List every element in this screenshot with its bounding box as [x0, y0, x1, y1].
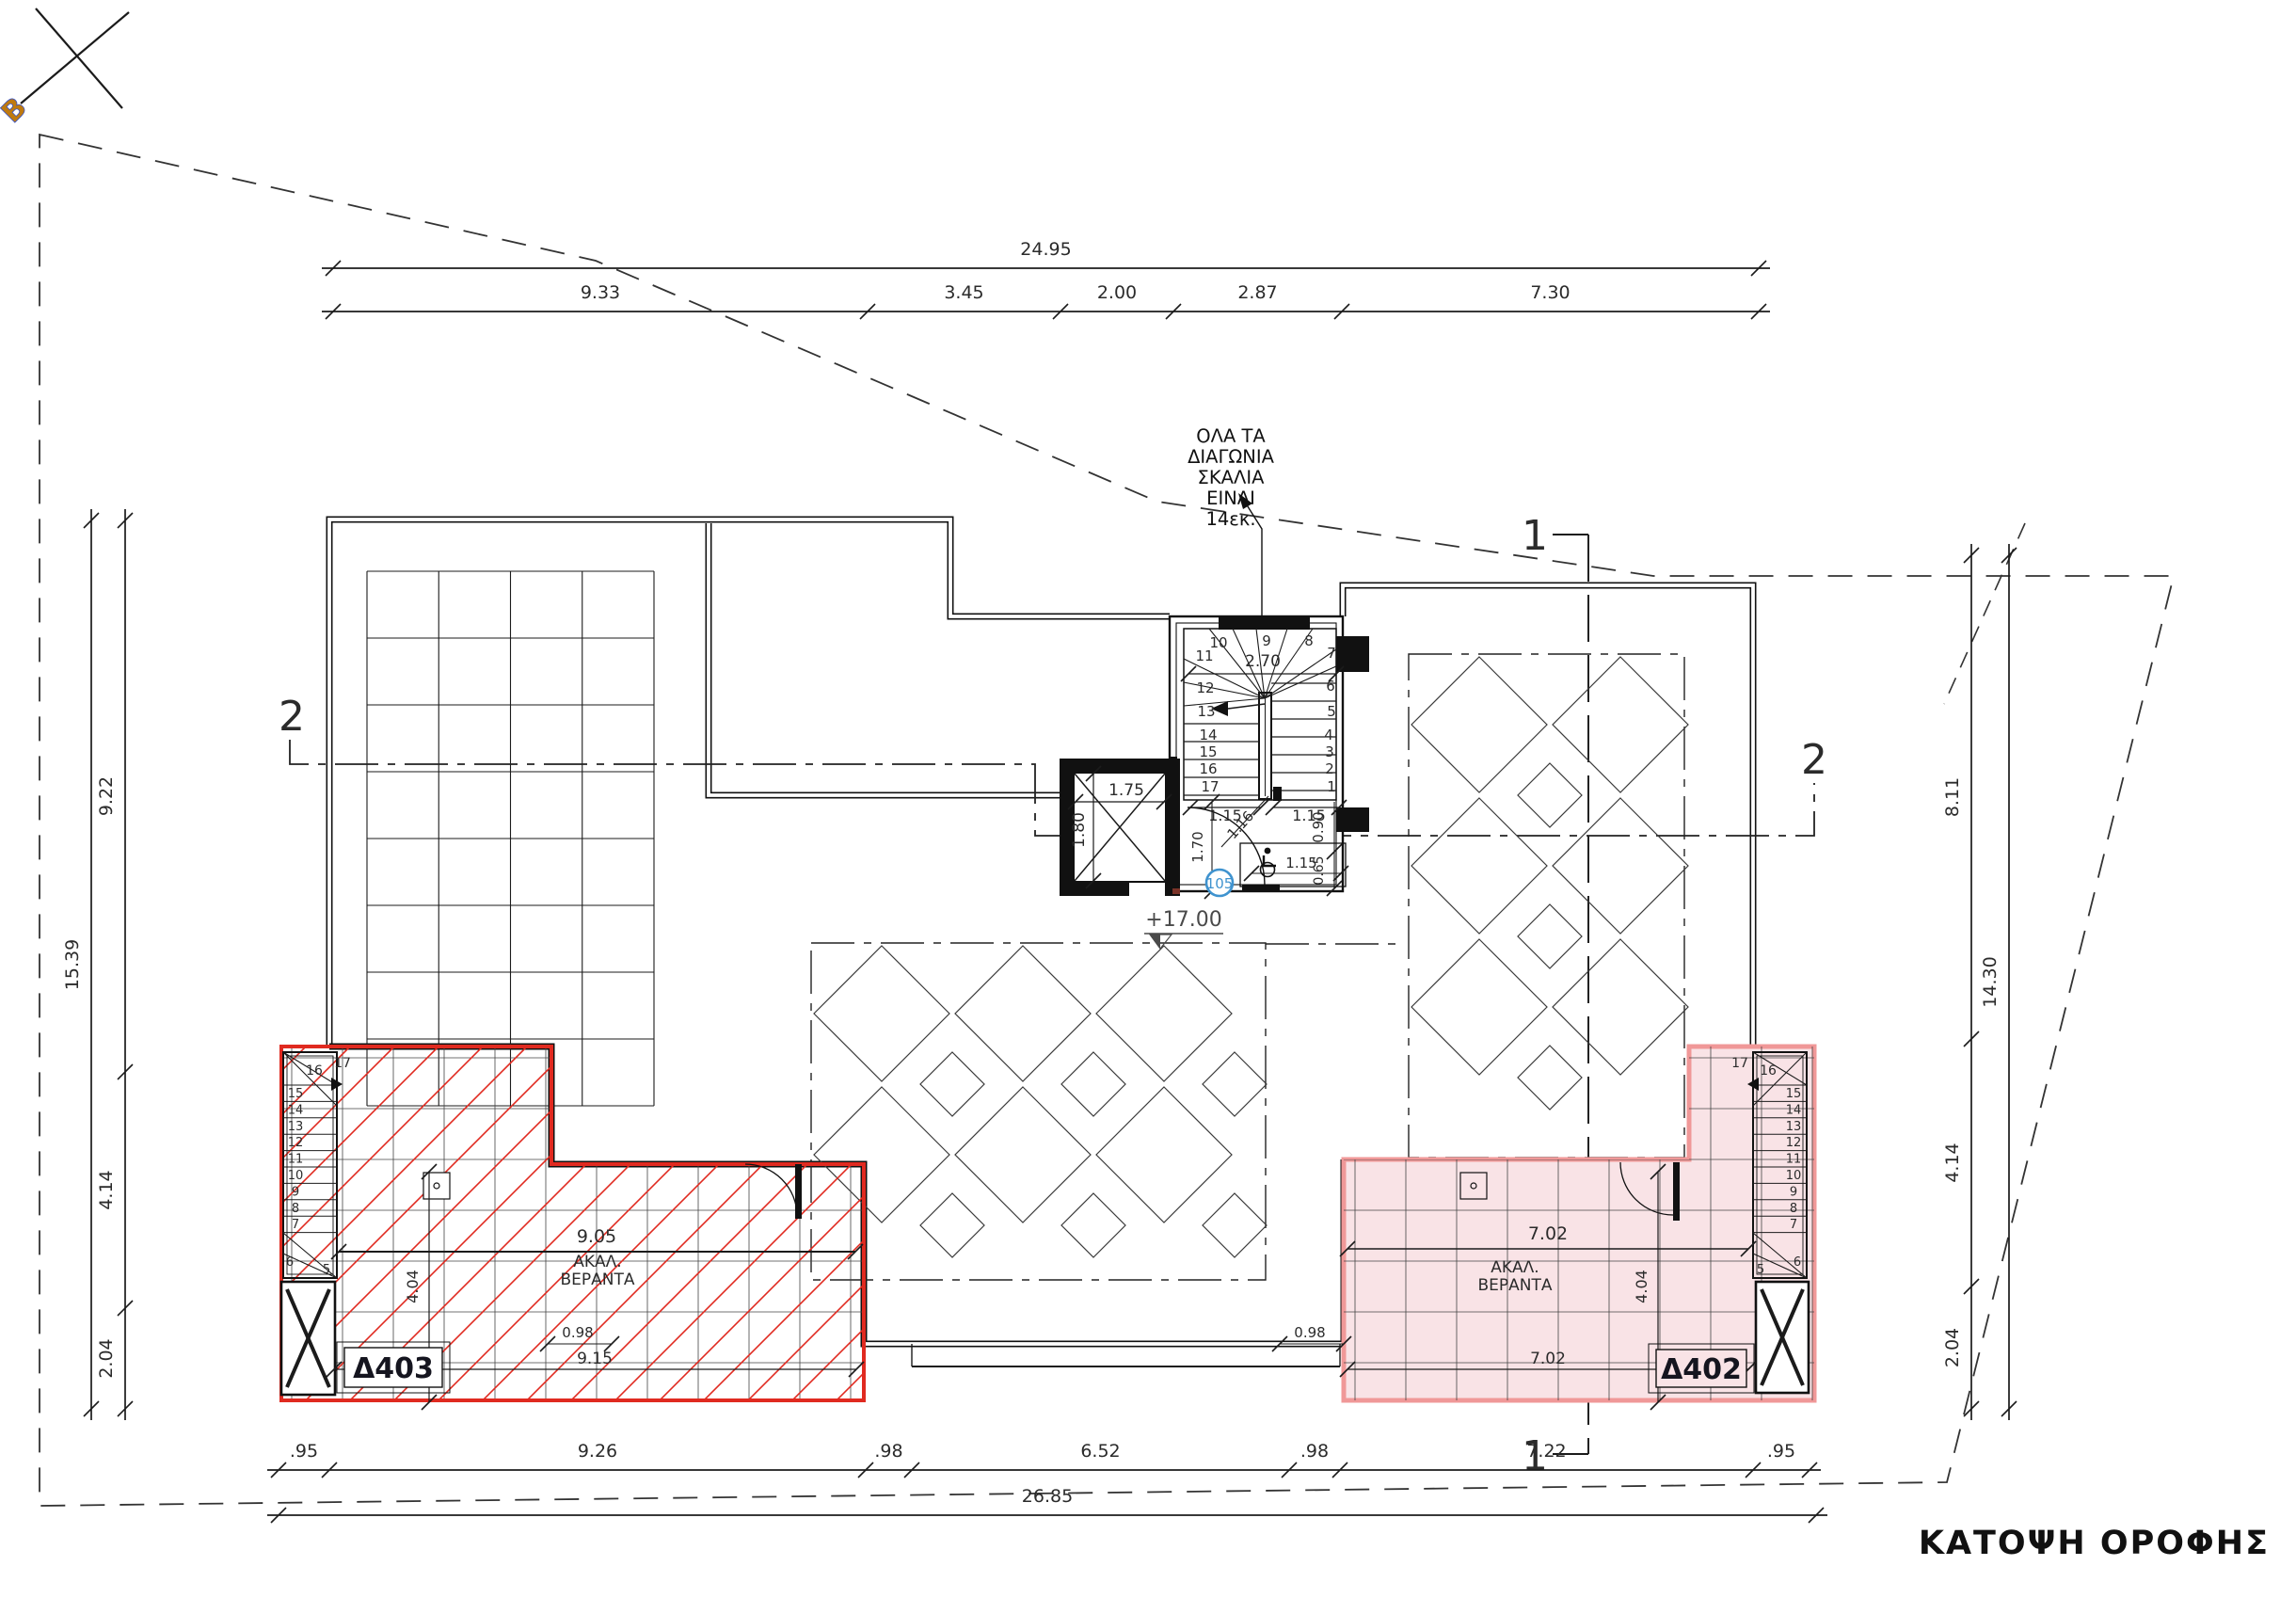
use-label: ΒΕΡΑΝΤΑ [560, 1270, 634, 1289]
dim-label: 0.98 [562, 1324, 593, 1341]
dim-label: 9.15 [577, 1350, 613, 1368]
step-number: 15 [1199, 743, 1217, 760]
north-arrow: Β [0, 8, 129, 130]
note-line: ΣΚΑΛΙΑ [1198, 467, 1266, 488]
step-number: 6 [1794, 1255, 1801, 1270]
dim-label: 7.02 [1530, 1350, 1566, 1368]
step-number: 10 [288, 1169, 304, 1183]
dim-label: 8.11 [1942, 777, 1963, 817]
step-number: 15 [1786, 1087, 1802, 1101]
step-number: 8 [292, 1202, 299, 1216]
dim-label: 3.45 [944, 282, 983, 303]
step-number: 8 [1790, 1202, 1797, 1216]
step-number: 4 [1324, 727, 1333, 743]
dim-label: 4.14 [96, 1170, 117, 1209]
drawing-title: ΚΑΤΟΨΗ ΟΡΟΦΗΣ [1919, 1525, 2270, 1562]
step-number: 12 [1786, 1136, 1802, 1150]
floorplan-drawing: Β112210111213141516179876543212.701.151.… [0, 0, 2296, 1598]
step-number: 14 [1786, 1103, 1802, 1117]
pergola-grid [367, 571, 654, 1106]
step-number: 2 [1325, 760, 1334, 777]
floorplan-sheet: Β112210111213141516179876543212.701.151.… [0, 0, 2296, 1598]
diamond-paving-right [1411, 657, 1688, 1110]
step-number: 16 [1760, 1063, 1777, 1079]
step-number: 16 [306, 1063, 323, 1079]
dim-label: 0.90 [1310, 811, 1327, 842]
dim-label: 7.02 [1528, 1223, 1568, 1244]
dim-label: 4.04 [404, 1270, 422, 1303]
section-2-left: 2 [279, 693, 305, 741]
step-number: 17 [1731, 1056, 1748, 1071]
level-value: +17.00 [1145, 908, 1221, 932]
dim-label: 6.52 [1080, 1441, 1120, 1462]
step-number: 17 [1201, 778, 1219, 795]
unit-tag: Δ403 [353, 1352, 434, 1385]
note-line: ΟΛΑ ΤΑ [1196, 425, 1266, 447]
step-number: 14 [1199, 727, 1217, 743]
step-number: 9 [292, 1185, 299, 1199]
step-number: 11 [1195, 647, 1213, 664]
step-number: 14 [288, 1103, 304, 1117]
dim-label: 1.15 [1285, 855, 1316, 871]
balcony-right: 1514131211109871617657.02ΑΚΑΛ.ΒΕΡΑΝΤΑ7.0… [1340, 1047, 1814, 1410]
dim-label: 4.14 [1942, 1143, 1963, 1182]
step-number: 16 [1199, 760, 1217, 777]
room-tag: 105 [1206, 875, 1234, 892]
step-number: 3 [1325, 743, 1334, 760]
dim-label: 2.87 [1237, 282, 1277, 303]
dim-label: 9.26 [578, 1441, 617, 1462]
diamond-paving-center [814, 946, 1267, 1257]
dim-label: 7.30 [1530, 282, 1570, 303]
unit-tag: Δ402 [1661, 1353, 1742, 1386]
dim-label: 1.70 [1189, 831, 1206, 862]
dim-label: 14.30 [1980, 956, 2001, 1007]
use-label: ΑΚΑΛ. [1491, 1258, 1539, 1277]
dim-label: 2.04 [96, 1338, 117, 1378]
step-number: 7 [1790, 1218, 1797, 1232]
note-line: ΔΙΑΓΩΝΙΑ [1188, 446, 1275, 468]
step-number: 5 [1757, 1263, 1764, 1277]
dim-label: 0.98 [1294, 1324, 1325, 1341]
elevator: 1.751.80 [1060, 759, 1180, 896]
step-number: 8 [1304, 632, 1314, 649]
step-number: 9 [1790, 1185, 1797, 1199]
step-number: 11 [1786, 1153, 1802, 1167]
dim-label: 24.95 [1020, 239, 1071, 260]
dim-label: 9.05 [577, 1226, 616, 1247]
dim-label: .95 [1767, 1441, 1795, 1462]
use-label: ΒΕΡΑΝΤΑ [1477, 1276, 1552, 1295]
dim-label: .98 [874, 1441, 902, 1462]
step-number: 13 [1197, 703, 1215, 720]
stair-note: ΟΛΑ ΤΑΔΙΑΓΩΝΙΑΣΚΑΛΙΑΕΙΝΑΙ14εκ. [1188, 425, 1275, 617]
dim-label: 1.75 [1108, 781, 1144, 800]
dim-label: .98 [1300, 1441, 1329, 1462]
step-number: 9 [1262, 632, 1271, 649]
step-number: 13 [288, 1120, 304, 1134]
step-number: 13 [1786, 1120, 1802, 1134]
dim-label: 15.39 [62, 939, 83, 990]
main-stair: 10111213141516179876543212.701.151.151.1… [1170, 616, 1369, 899]
dim-label: 26.85 [1022, 1486, 1073, 1507]
step-number: 12 [288, 1136, 304, 1150]
balcony-outline [1344, 1047, 1814, 1400]
step-number: 1 [1327, 778, 1336, 795]
step-number: 5 [323, 1263, 330, 1277]
step-number: 12 [1196, 679, 1214, 696]
dim-label: 7.22 [1526, 1441, 1566, 1462]
step-number: 6 [286, 1255, 294, 1270]
parapet-gaps: 0.980.98 [540, 1324, 1351, 1351]
use-label: ΑΚΑΛ. [573, 1253, 621, 1271]
dim-label: 1.80 [1070, 812, 1089, 848]
dim-label: 2.70 [1245, 652, 1281, 671]
step-number: 5 [1327, 703, 1336, 720]
note-line: 14εκ. [1205, 508, 1255, 530]
step-number: 15 [288, 1087, 304, 1101]
dim-label: 2.04 [1942, 1328, 1963, 1367]
step-number: 10 [1786, 1169, 1802, 1183]
step-number: 7 [1327, 645, 1336, 662]
section-1-top: 1 [1522, 512, 1548, 560]
dim-label: 9.33 [581, 282, 620, 303]
dim-label: .95 [290, 1441, 318, 1462]
dim-label: 4.04 [1633, 1270, 1650, 1303]
step-number: 17 [334, 1056, 351, 1071]
step-number: 7 [292, 1218, 299, 1232]
balcony-left: 1514131211109871617659.05ΑΚΑΛ.ΒΕΡΑΝΤΑ9.1… [0, 1047, 1190, 1410]
step-number: 11 [288, 1153, 304, 1167]
section-2-right: 2 [1801, 736, 1827, 784]
dim-label: 2.00 [1097, 282, 1137, 303]
dim-label: 9.22 [96, 776, 117, 816]
